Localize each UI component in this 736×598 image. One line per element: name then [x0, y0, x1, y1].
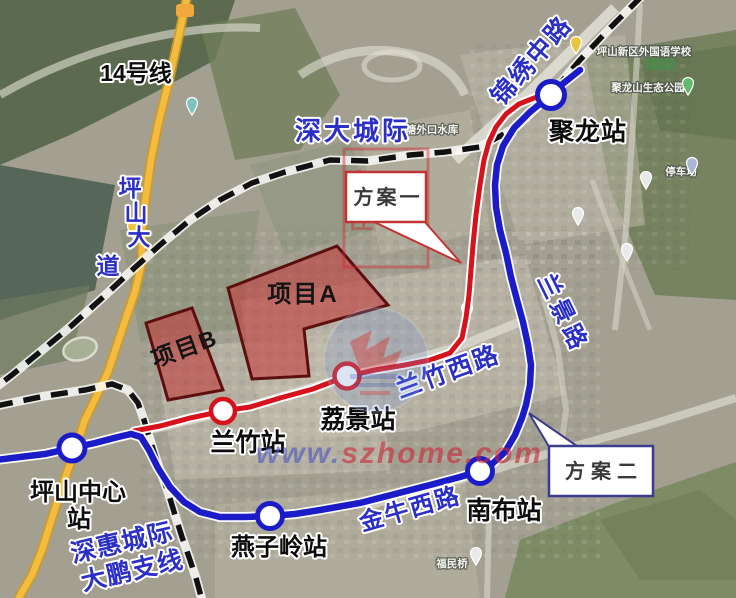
station-marker-pingshan-center: [59, 435, 85, 461]
pingshan-avenue-char: 道: [97, 253, 120, 279]
basemap-label-park: 聚龙山生态公园: [610, 81, 685, 94]
station-marker-lanzhu: [211, 399, 235, 423]
site-url-tld: .com: [465, 437, 543, 470]
shenda-intercity-label: 深大城际: [295, 116, 411, 146]
pingshan-avenue-char: 山: [125, 200, 148, 226]
plan2-label: 方案二: [565, 459, 643, 483]
pingshan-avenue-char: 大: [128, 224, 151, 250]
station-label-yanziling: 燕子岭站: [231, 533, 327, 561]
station-marker-yanziling: [258, 504, 283, 529]
map-image: 坪山新区外国语学校 聚龙山生态公园 停车场 塘外口水库 福民桥: [0, 0, 736, 598]
pingshan-avenue-char: 坪: [119, 175, 142, 201]
site-emblem-watermark: [324, 308, 428, 412]
project-a-label: 项目A: [267, 281, 338, 308]
site-url-www: www.: [256, 437, 341, 470]
site-url-domain: szhome: [341, 437, 465, 470]
line14-label: 14号线: [100, 60, 172, 86]
map-canvas: 坪山新区外国语学校 聚龙山生态公园 停车场 塘外口水库 福民桥: [0, 0, 736, 598]
site-url-watermark: www.szhome.com: [256, 437, 543, 470]
station-marker-julong: [538, 82, 565, 109]
station-label-nanbu: 南布站: [466, 496, 541, 525]
road-badge: [176, 4, 194, 17]
station-label-julong: 聚龙站: [548, 118, 627, 146]
station-label-pingshan-center-2: 站: [67, 506, 91, 533]
basemap-label-school: 坪山新区外国语学校: [597, 45, 692, 58]
sports-field: [645, 58, 675, 70]
basemap-label-bridge: 福民桥: [435, 557, 468, 570]
plan1-label: 方案一: [354, 185, 423, 209]
station-label-pingshan-center-1: 坪山中心: [30, 479, 126, 506]
basemap-label-reservoir: 塘外口水库: [406, 123, 459, 136]
